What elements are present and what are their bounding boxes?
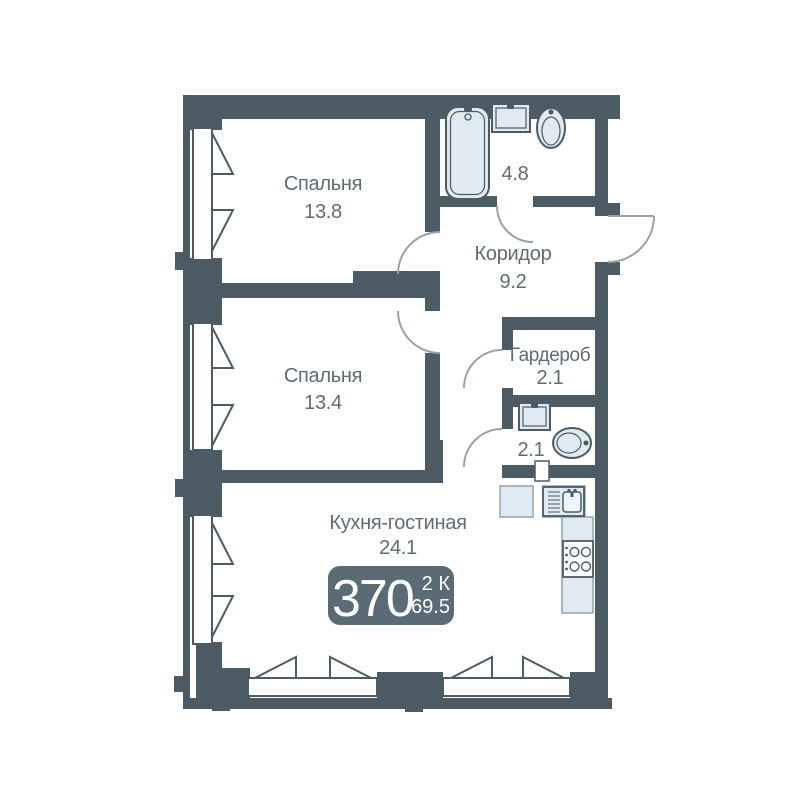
flat-number: 370	[332, 570, 413, 628]
window-kitchen-bottom-right	[443, 678, 570, 696]
floor-plan-page: Спальня 13.8 Спальня 13.4 Коридор 9.2 4.…	[0, 0, 800, 800]
window-kitchen-bottom-left	[248, 678, 377, 696]
wall-bedrooms-divider-thin	[212, 283, 357, 298]
bedroom1-name: Спальня	[284, 173, 362, 195]
pillar-bottom-right	[570, 672, 608, 698]
corridor-name: Коридор	[475, 243, 552, 265]
corridor-area: 9.2	[500, 271, 527, 293]
door-arc-bedroom1	[398, 232, 440, 274]
window-bedroom2	[193, 323, 212, 450]
counter-left-piece	[500, 486, 533, 517]
casement-icon	[212, 210, 233, 251]
facade-tab-1	[175, 252, 184, 270]
facade-tab-2	[175, 479, 184, 497]
facade-tab-5	[405, 698, 423, 712]
wall-bedroom2-bottom	[212, 470, 443, 483]
casement-icon	[212, 327, 233, 368]
bathtub-icon	[446, 103, 489, 199]
wall-bedroom2-right-upper	[425, 298, 440, 311]
pillar-left-1	[190, 95, 222, 130]
kitchen-area: 24.1	[379, 537, 417, 559]
casement-icon	[255, 657, 296, 678]
wc-toilet-icon	[553, 428, 591, 458]
window-bedroom1	[193, 128, 212, 260]
facade-tab-4	[212, 698, 230, 711]
wardrobe-name: Гардероб	[510, 345, 591, 366]
wall-bedroom2-right-lower	[425, 353, 440, 440]
door-arc-wc	[464, 429, 502, 467]
wall-left-facade-line	[183, 95, 190, 709]
casement-icon	[212, 596, 233, 637]
wall-bedroom1-right	[425, 119, 440, 232]
stove-icon	[563, 541, 593, 577]
bedroom2-name: Спальня	[284, 365, 362, 387]
casement-icon	[451, 657, 492, 678]
wall-bedrooms-divider-thick	[353, 271, 440, 298]
wall-bottom-facade-line	[183, 698, 612, 709]
casement-icon	[330, 657, 371, 678]
wall-bathroom-bottom-right	[533, 196, 608, 207]
floor-plan: Спальня 13.8 Спальня 13.4 Коридор 9.2 4.…	[0, 0, 800, 800]
pillar-bottom-middle	[377, 672, 443, 698]
bathroom-sink-icon	[492, 100, 530, 132]
bedroom2-area: 13.4	[304, 392, 342, 414]
bathroom-area: 4.8	[502, 163, 529, 185]
pillar-left-corner-v	[196, 642, 222, 698]
door-arc-bathroom	[497, 206, 533, 242]
flat-rooms-count: 2 К	[422, 573, 451, 595]
flat-total-area: 69.5	[411, 596, 450, 618]
pillar-left-3	[190, 450, 222, 517]
facade-tab-3	[174, 676, 184, 692]
wall-wardrobe-top	[502, 317, 608, 330]
bathroom-toilet-icon	[537, 108, 565, 148]
door-arc-wardrobe	[464, 350, 502, 388]
casement-icon	[212, 523, 233, 564]
wc-area: 2.1	[518, 439, 545, 461]
wall-wardrobe-wc-divider	[502, 395, 608, 407]
pillar-left-corner-h	[222, 668, 250, 698]
flat-badge: 370 2 К 69.5	[328, 566, 454, 628]
casement-icon	[212, 405, 233, 446]
wall-right-upper	[595, 119, 608, 209]
window-kitchen-left	[193, 515, 212, 644]
casement-icon	[523, 657, 564, 678]
wall-hatch	[535, 461, 549, 481]
wall-wc-bottom-left	[502, 465, 535, 478]
kitchen-name: Кухня-гостиная	[329, 512, 466, 534]
wardrobe-area: 2.1	[537, 367, 564, 389]
casement-icon	[212, 133, 233, 174]
entrance-door-arc	[608, 216, 654, 262]
bedroom1-area: 13.8	[304, 201, 342, 223]
wall-wc-bottom-right	[549, 465, 608, 478]
wall-wc-left-upper	[502, 407, 513, 429]
wc-sink-icon	[519, 399, 550, 430]
door-arc-bedroom2	[398, 311, 440, 353]
